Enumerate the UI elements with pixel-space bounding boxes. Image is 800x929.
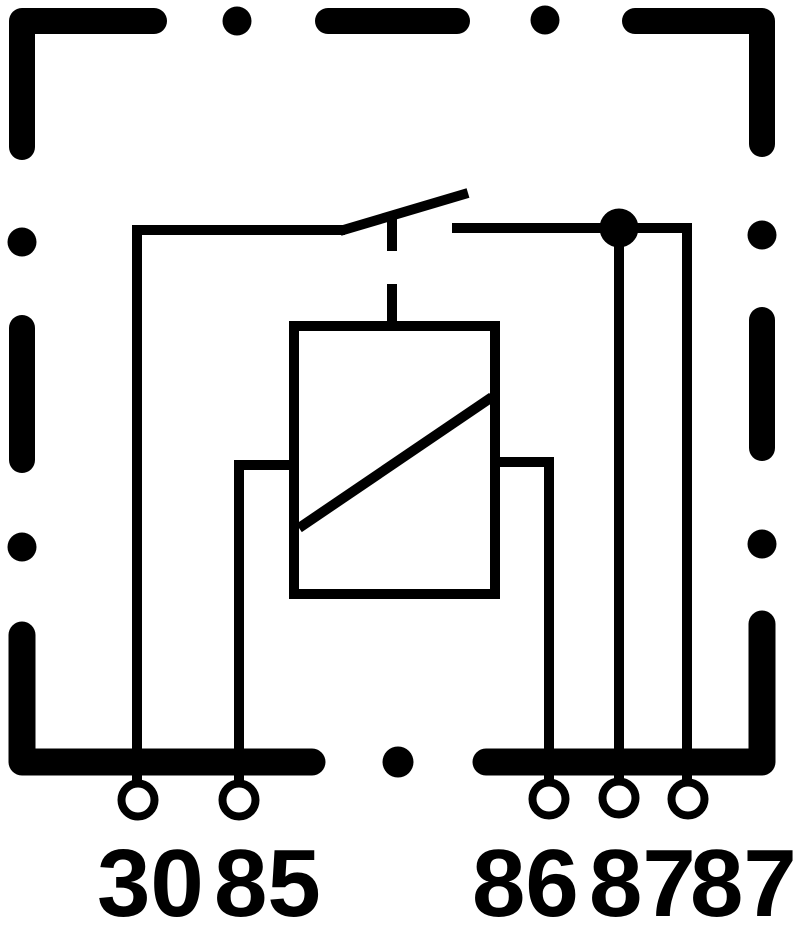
svg-text:87: 87 [690, 830, 797, 929]
svg-text:85: 85 [214, 830, 321, 929]
svg-text:30: 30 [97, 830, 204, 929]
svg-text:86: 86 [472, 830, 579, 929]
svg-text:87: 87 [589, 830, 696, 929]
